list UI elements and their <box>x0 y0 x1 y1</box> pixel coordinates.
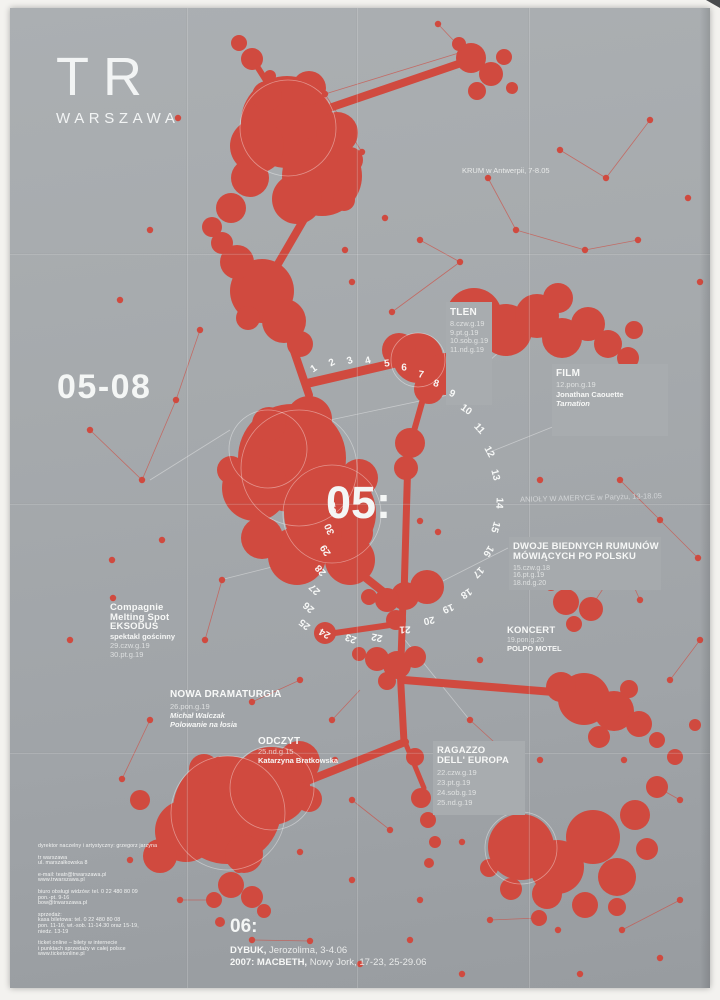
annotation-krum: KRUM w Antwerpii, 7-8.05 <box>462 166 550 175</box>
calendar-day-25: 25 <box>297 616 313 632</box>
scan-corner-artifact <box>706 0 720 8</box>
poster-artwork-layer: TR WARSZAWA KRUM w Antwerpii, 7-8.05 ANI… <box>10 8 710 988</box>
june-dybuk-rest: Jerozolima, 3-4.06 <box>266 945 347 956</box>
event-dwoje-title2: MÓWIĄCYCH PO POLSKU <box>513 552 661 562</box>
event-nowa-date: 26.pon.g.19 <box>170 702 282 711</box>
event-ragazzo-title2: DELL' EUROPA <box>437 756 525 766</box>
event-nowa-dramaturgia: NOWA DRAMATURGIA 26.pon.g.19 Michał Walc… <box>170 689 282 729</box>
event-eksodus-date: 29.czw.g.19 <box>110 641 175 651</box>
june-macbeth-rest: Nowy Jork, 17-23, 25-29.06 <box>307 957 426 968</box>
contact-box-office: biuro obsługi widzów: tel. 0 22 480 80 0… <box>38 890 188 907</box>
logo: TR WARSZAWA <box>56 48 179 127</box>
event-nowa-author: Michał Walczak <box>170 711 282 720</box>
event-eksodus: Compagnie Melting Spot EKSODUS spektakl … <box>110 603 175 660</box>
event-film-title: FILM <box>556 368 668 379</box>
calendar-day-8: 8 <box>432 378 440 390</box>
event-koncert: KONCERT 19.pon.g.20 POLPO MOTEL <box>507 625 562 653</box>
scan-edge-shadow <box>700 8 710 988</box>
contact-line: ul. marszałkowska 8 <box>38 861 188 867</box>
calendar-day-6: 6 <box>401 362 407 373</box>
contact-line: dyrektor naczelny i artystyczny: grzegor… <box>38 844 188 850</box>
contact-ticket-online: ticket online – bilety w internecie i pu… <box>38 941 188 958</box>
calendar-day-1: 1 <box>309 363 320 375</box>
event-dwoje-date: 18.nd.g.20 <box>513 580 661 587</box>
event-ragazzo-date: 23.pt.g.19 <box>437 778 525 788</box>
calendar-day-20: 20 <box>422 613 435 626</box>
calendar-day-26: 26 <box>301 599 317 615</box>
contact-email: e-mail: teatr@trwarszawa.pl www.trwarsza… <box>38 873 188 884</box>
calendar-day-12: 12 <box>482 445 497 460</box>
logo-warszawa: WARSZAWA <box>56 110 179 127</box>
event-nowa-work: Polowanie na łosia <box>170 720 282 729</box>
june-dybuk-title: DYBUK, <box>230 945 266 956</box>
event-film-work: Tarnation <box>556 399 668 409</box>
calendar-day-4: 4 <box>364 355 372 367</box>
june-block: 06: DYBUK, Jerozolima, 3-4.06 2007: MACB… <box>230 916 426 969</box>
contact-block: dyrektor naczelny i artystyczny: grzegor… <box>38 844 188 964</box>
logo-tr: TR <box>56 48 179 106</box>
fold-crease-horizontal <box>10 253 710 255</box>
calendar-day-5: 5 <box>384 358 391 370</box>
calendar-day-11: 11 <box>471 421 486 436</box>
calendar-day-7: 7 <box>417 369 424 381</box>
event-koncert-title: KONCERT <box>507 625 562 636</box>
calendar-day-22: 22 <box>371 631 384 644</box>
event-eksodus-title: EKSODUS <box>110 622 175 632</box>
season-label: 05-08 <box>57 368 151 407</box>
event-ragazzo-date: 25.nd.g.19 <box>437 798 525 808</box>
june-dybuk-line: DYBUK, Jerozolima, 3-4.06 <box>230 945 426 957</box>
fold-crease-vertical <box>186 8 188 988</box>
event-film-author: Jonathan Caouette <box>556 390 668 400</box>
event-ragazzo: RAGAZZO DELL' EUROPA 22.czw.g.19 23.pt.g… <box>433 741 525 815</box>
scanned-poster: TR WARSZAWA KRUM w Antwerpii, 7-8.05 ANI… <box>0 0 720 1000</box>
june-macbeth-line: 2007: MACBETH, Nowy Jork, 17-23, 25-29.0… <box>230 957 426 969</box>
event-tlen-date: 11.nd.g.19 <box>450 346 492 355</box>
event-eksodus-note: spektakl gościnny <box>110 632 175 641</box>
fold-crease-horizontal <box>10 752 710 754</box>
event-ragazzo-date: 22.czw.g.19 <box>437 768 525 778</box>
contact-sales: sprzedaż: kasa biletowa: tel. 0 22 480 8… <box>38 913 188 935</box>
contact-line: www.trwarszawa.pl <box>38 878 188 884</box>
contact-line: niedz. 13-19 <box>38 930 188 936</box>
event-tlen: TLEN 8.czw.g.19 9.pt.g.19 10.sob.g.19 11… <box>446 302 492 405</box>
june-macbeth-title: 2007: MACBETH, <box>230 957 307 968</box>
event-koncert-artist: POLPO MOTEL <box>507 645 562 653</box>
event-film: FILM 12.pon.g.19 Jonathan Caouette Tarna… <box>552 364 668 436</box>
calendar-day-13: 13 <box>488 468 501 481</box>
calendar-day-21: 21 <box>399 623 410 634</box>
calendar-day-28: 28 <box>313 562 329 578</box>
contact-line: bow@trwarszawa.pl <box>38 901 188 907</box>
calendar-day-15: 15 <box>488 520 502 534</box>
event-film-date: 12.pon.g.19 <box>556 380 668 390</box>
contact-director: dyrektor naczelny i artystyczny: grzegor… <box>38 844 188 850</box>
event-ragazzo-date: 24.sob.g.19 <box>437 788 525 798</box>
event-tlen-title: TLEN <box>450 307 492 318</box>
event-odczyt-author: Katarzyna Bratkowska <box>258 757 338 766</box>
event-dwoje-date: 15.czw.g.18 <box>513 565 661 572</box>
event-eksodus-date: 30.pt.g.19 <box>110 650 175 660</box>
event-dwoje-date: 16.pt.g.19 <box>513 572 661 579</box>
event-nowa-title: NOWA DRAMATURGIA <box>170 689 282 700</box>
calendar-day-18: 18 <box>458 585 473 600</box>
calendar-day-29: 29 <box>318 542 333 557</box>
calendar-day-16: 16 <box>480 543 495 558</box>
calendar-day-17: 17 <box>470 564 486 580</box>
event-dwoje: DWOJE BIEDNYCH RUMUNÓW MÓWIĄCYCH PO POLS… <box>509 537 661 590</box>
annotation-anioly: ANIOŁY W AMERYCE w Paryżu, 13-18.05 <box>520 491 662 504</box>
month-may-label: 05: <box>326 477 391 529</box>
contact-address: tr warszawa ul. marszałkowska 8 <box>38 856 188 867</box>
contact-line: www.ticketonline.pl <box>38 952 188 958</box>
calendar-day-2: 2 <box>327 357 337 369</box>
month-june-label: 06: <box>230 916 426 938</box>
event-odczyt-title: ODCZYT <box>258 736 338 747</box>
calendar-day-24: 24 <box>317 625 332 640</box>
calendar-day-3: 3 <box>345 355 354 367</box>
calendar-day-19: 19 <box>441 601 455 615</box>
poster-sheet: TR WARSZAWA KRUM w Antwerpii, 7-8.05 ANI… <box>10 8 710 988</box>
calendar-day-27: 27 <box>307 581 323 597</box>
event-odczyt: ODCZYT 25.nd.g.15 Katarzyna Bratkowska <box>258 736 338 765</box>
